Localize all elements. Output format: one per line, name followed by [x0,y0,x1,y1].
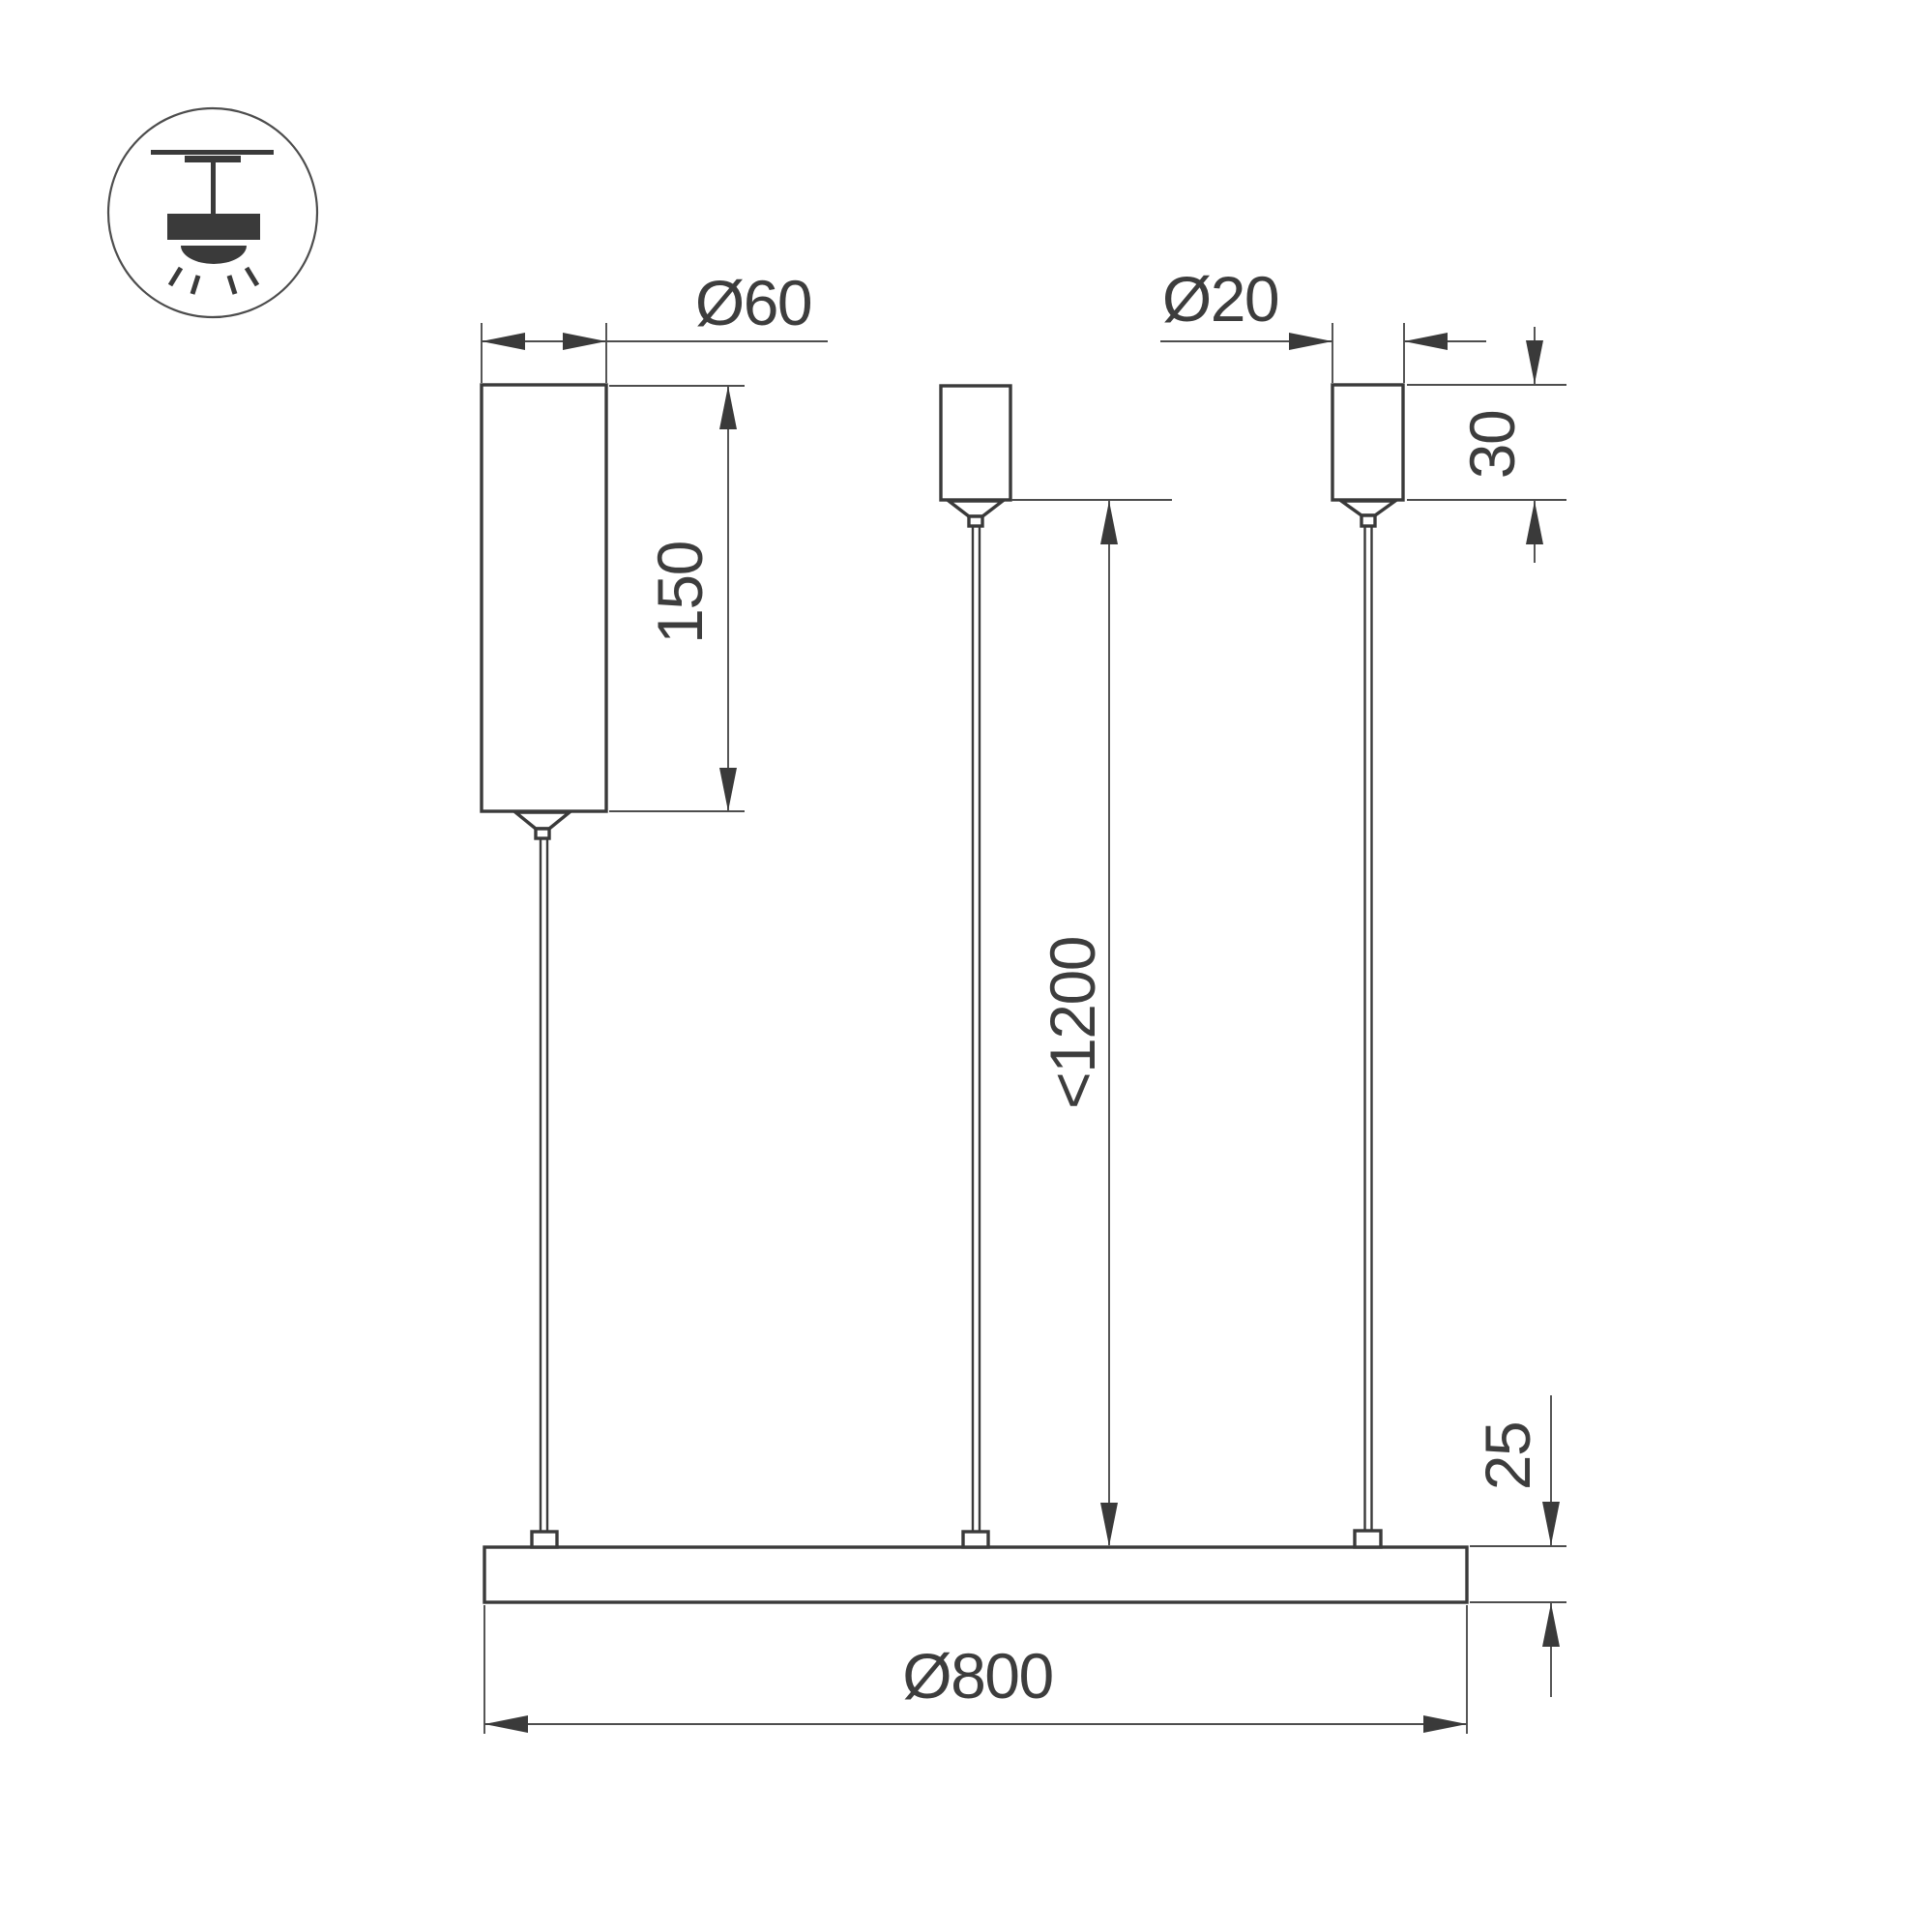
dim-canopy-height: 30 [1407,327,1566,563]
icon-ceiling-track [151,150,274,155]
dim-suspension-length: <1200 [1011,500,1172,1546]
middle-suspension-assembly [941,386,1010,1532]
dim-label-fixture-thickness: 25 [1472,1422,1543,1490]
dim-canopy-diameter: Ø20 [1160,263,1486,383]
right-cone [1341,501,1395,515]
icon-lamp-dome [181,246,247,264]
middle-cone [949,501,1003,516]
dim-driver-length: 150 [609,386,745,811]
dim-label-fixture-diameter: Ø800 [902,1640,1052,1712]
driver-cone [515,812,570,829]
icon-stem [211,156,216,215]
icon-light-ray [229,276,235,294]
dim-label-driver-diameter: Ø60 [695,267,811,338]
arrowhead-up [719,386,737,429]
arrowhead-down [1542,1502,1560,1545]
arrowhead-up [1542,1603,1560,1647]
right-canopy [1332,385,1403,500]
pendant-ceiling-mount-icon [108,108,317,317]
bar-connector-left [532,1532,557,1547]
arrowhead-left [1404,333,1448,350]
dim-fixture-diameter: Ø800 [484,1605,1467,1734]
dim-label-suspension-length: <1200 [1037,937,1108,1109]
dim-label-canopy-height: 30 [1456,411,1528,479]
icon-lamp-body [167,214,260,240]
arrowhead-down [719,768,737,811]
right-wire-grip [1361,515,1375,526]
arrowhead-down [1526,340,1543,384]
arrowhead-up [1100,501,1118,544]
arrowhead-left [482,333,525,350]
dim-label-canopy-diameter: Ø20 [1162,263,1278,335]
arrowhead-left [484,1715,528,1733]
driver-box [482,385,606,811]
arrowhead-up [1526,501,1543,544]
icon-light-ray [192,276,198,294]
middle-canopy [941,386,1010,500]
pendant-lamp-dimension-drawing: Ø60 150 Ø20 30 <1200 [0,0,1932,1932]
fixture-bar-assembly [484,1531,1467,1602]
arrowhead-right [1289,333,1332,350]
dim-driver-diameter: Ø60 [482,267,828,383]
icon-light-ray [247,268,257,285]
fixture-bar [484,1547,1467,1602]
driver-wire-grip [536,829,549,838]
dim-fixture-thickness: 25 [1470,1395,1566,1697]
right-suspension-assembly [1332,385,1403,1531]
arrowhead-down [1100,1503,1118,1546]
icon-light-ray [170,268,181,285]
technical-drawing-page: Ø60 150 Ø20 30 <1200 [0,0,1932,1932]
bar-connector-middle [963,1532,988,1547]
driver-box-assembly [482,385,606,1532]
arrowhead-right [563,333,606,350]
middle-wire-grip [969,516,982,526]
dim-label-driver-length: 150 [644,542,716,644]
bar-connector-right [1355,1531,1381,1547]
arrowhead-right [1423,1715,1467,1733]
